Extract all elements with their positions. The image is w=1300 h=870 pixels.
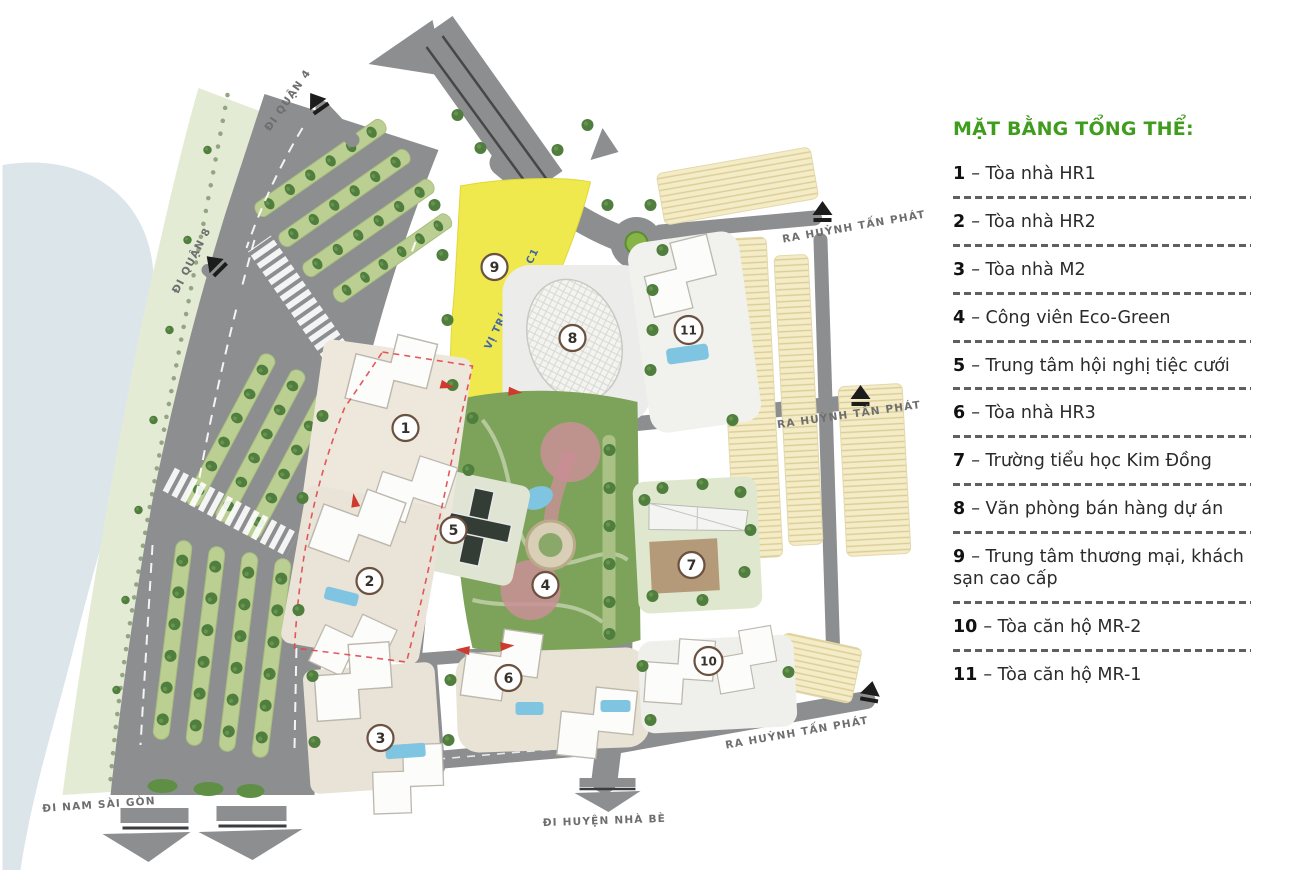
legend-item-text: – Tòa nhà HR2 <box>971 212 1096 232</box>
legend-item-9: 9– Trung tâm thương mại, khách sạn cao c… <box>953 547 1251 591</box>
roundabout-north-arrow <box>591 128 619 160</box>
legend-item-8: 8– Văn phòng bán hàng dự án <box>953 499 1251 521</box>
svg-text:7: 7 <box>687 558 697 574</box>
legend-item-text: – Trung tâm hội nghị tiệc cưới <box>971 356 1230 376</box>
legend-item-number: 10 <box>953 617 977 637</box>
legend-item-3: 3– Tòa nhà M2 <box>953 260 1251 282</box>
marker-11: 11 <box>675 316 703 344</box>
legend-item-text: – Tòa căn hộ MR-1 <box>983 665 1141 685</box>
legend-item-text: – Văn phòng bán hàng dự án <box>971 499 1223 519</box>
marker-4: 4 <box>533 572 559 598</box>
legend-panel: MẶT BẰNG TỔNG THỂ: 1– Tòa nhà HR1 2– Tòa… <box>953 118 1251 687</box>
legend-item-number: 4 <box>953 308 965 328</box>
legend-item-text: – Tòa căn hộ MR-2 <box>983 617 1141 637</box>
svg-text:5: 5 <box>449 523 459 539</box>
legend-item-text: – Trường tiểu học Kim Đồng <box>971 451 1212 471</box>
legend-divider <box>953 340 1251 343</box>
legend-item-11: 11– Tòa căn hộ MR-1 <box>953 665 1251 687</box>
school-7 <box>632 476 763 614</box>
legend-divider <box>953 244 1251 247</box>
legend-divider <box>953 531 1251 534</box>
nha-be-exit-arrow <box>575 778 641 812</box>
marker-2: 2 <box>357 568 383 594</box>
master-plan-page: VỊ TRÍ LÔ ĐẤT C1 <box>0 0 1300 870</box>
legend-item-text: – Tòa nhà HR3 <box>971 403 1096 423</box>
legend-item-7: 7– Trường tiểu học Kim Đồng <box>953 451 1251 473</box>
marker-6: 6 <box>496 665 522 691</box>
legend-item-number: 9 <box>953 547 965 567</box>
legend-item-text: – Tòa nhà M2 <box>971 260 1085 280</box>
legend-divider <box>953 435 1251 438</box>
marker-7: 7 <box>679 552 705 578</box>
legend-item-1: 1– Tòa nhà HR1 <box>953 164 1251 186</box>
svg-text:11: 11 <box>680 323 697 337</box>
svg-text:4: 4 <box>541 578 551 594</box>
legend-title: MẶT BẰNG TỔNG THỂ: <box>953 118 1251 140</box>
site-plan-map-container: VỊ TRÍ LÔ ĐẤT C1 <box>0 0 940 870</box>
marker-3: 3 <box>368 725 394 751</box>
road-townhouse-east <box>821 240 835 696</box>
legend-item-5: 5– Trung tâm hội nghị tiệc cưới <box>953 356 1251 378</box>
svg-text:8: 8 <box>568 331 578 347</box>
legend-item-number: 8 <box>953 499 965 519</box>
legend-item-text: – Công viên Eco-Green <box>971 308 1170 328</box>
legend-item-number: 6 <box>953 403 965 423</box>
legend-divider <box>953 483 1251 486</box>
exit-arrow-huynh-tan-phat-3-icon <box>859 679 882 703</box>
svg-text:2: 2 <box>365 574 375 590</box>
legend-divider <box>953 292 1251 295</box>
legend-item-10: 10– Tòa căn hộ MR-2 <box>953 617 1251 639</box>
legend-item-number: 7 <box>953 451 965 471</box>
road-nha-be-stub <box>605 748 609 780</box>
legend-item-number: 11 <box>953 665 977 685</box>
marker-5: 5 <box>441 517 467 543</box>
svg-text:1: 1 <box>401 421 411 437</box>
legend-divider <box>953 601 1251 604</box>
marker-10: 10 <box>695 647 723 675</box>
marker-9: 9 <box>482 254 508 280</box>
svg-text:6: 6 <box>504 671 514 687</box>
nam-sai-gon-arrows <box>103 806 303 862</box>
tree-median <box>603 435 616 640</box>
site-plan-map: VỊ TRÍ LÔ ĐẤT C1 <box>0 0 940 870</box>
marker-1: 1 <box>393 415 419 441</box>
marker-8: 8 <box>560 325 586 351</box>
svg-text:3: 3 <box>376 731 386 747</box>
svg-text:9: 9 <box>490 260 500 276</box>
legend-item-6: 6– Tòa nhà HR3 <box>953 403 1251 425</box>
legend-item-number: 5 <box>953 356 965 376</box>
road-label-di-huyen-nha-be: ĐI HUYỆN NHÀ BÈ <box>542 812 666 829</box>
legend-item-number: 1 <box>953 164 965 184</box>
legend-item-number: 3 <box>953 260 965 280</box>
exit-arrow-huynh-tan-phat-1-icon <box>813 201 833 222</box>
legend-item-text: – Tòa nhà HR1 <box>971 164 1096 184</box>
svg-text:10: 10 <box>700 654 717 668</box>
legend-item-2: 2– Tòa nhà HR2 <box>953 212 1251 234</box>
legend-divider <box>953 196 1251 199</box>
legend-item-4: 4– Công viên Eco-Green <box>953 308 1251 330</box>
legend-item-text: – Trung tâm thương mại, khách sạn cao cấ… <box>953 547 1244 589</box>
legend-item-number: 2 <box>953 212 965 232</box>
legend-divider <box>953 649 1251 652</box>
legend-divider <box>953 387 1251 390</box>
